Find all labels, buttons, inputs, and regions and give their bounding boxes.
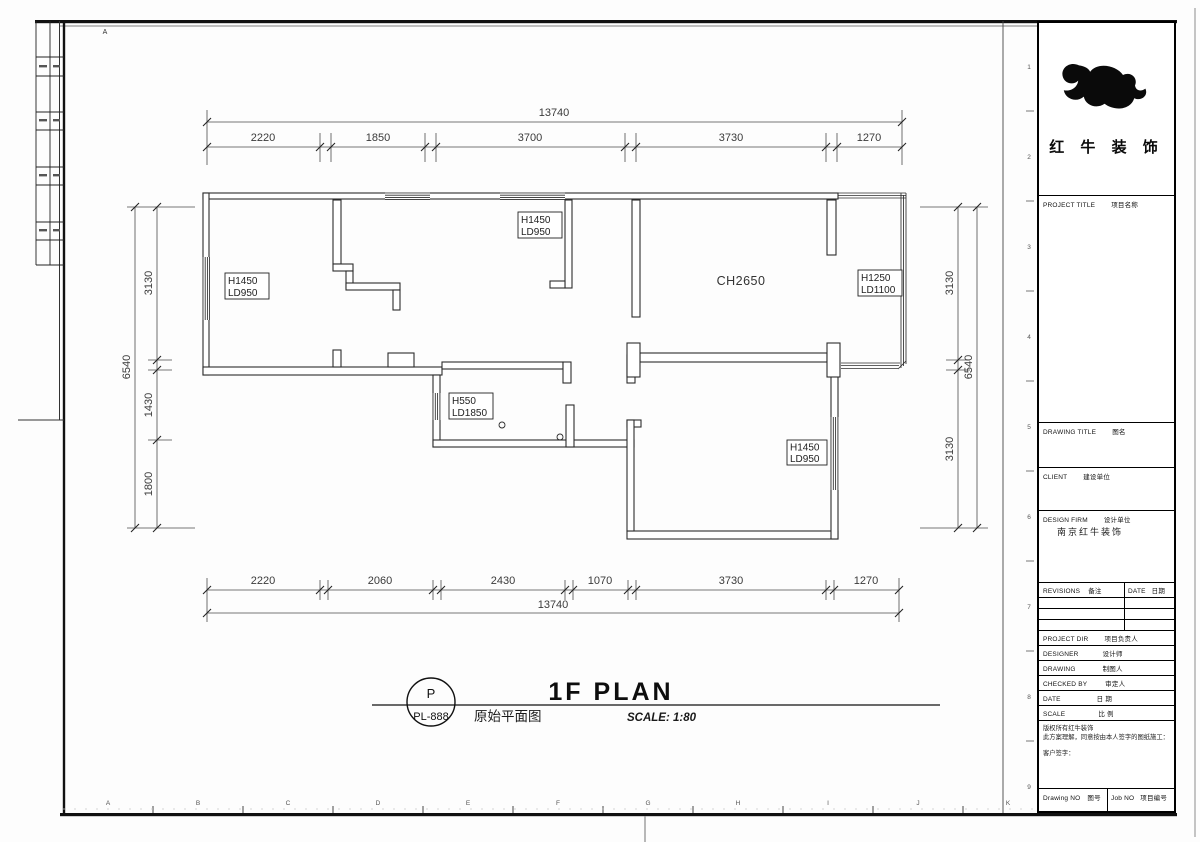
- field-label-en: SCALE: [1043, 711, 1065, 718]
- field-design-firm: DESIGN FIRM 设计单位: [1043, 514, 1131, 524]
- window-kitchen: [432, 393, 440, 420]
- field-label-cn: 图名: [1112, 429, 1125, 436]
- company-name: 红 牛 装 饰: [1039, 136, 1174, 157]
- field-label-cn: 设计单位: [1104, 517, 1131, 524]
- drawing-canvas: A B C D E F G H I J K 1 2 3 4 5 6 7 8 9 …: [0, 0, 1200, 842]
- sheet-frame: [18, 8, 1195, 842]
- ruler-number: 3: [1027, 244, 1031, 251]
- wall-tcap-right: [827, 343, 840, 377]
- wall-kitchen-bottom: [433, 440, 634, 447]
- field-label-en: PROJECT DIR: [1043, 636, 1088, 643]
- window-label-top-wall: H1450 LD950: [518, 212, 562, 238]
- window-left-wall: [202, 257, 209, 320]
- dim: 2220: [251, 575, 275, 587]
- dim: 3130: [944, 437, 956, 461]
- field-checked-by: CHECKED BY 审定人: [1043, 678, 1125, 688]
- ruler-number: 5: [1027, 424, 1031, 431]
- ruler-letter: C: [286, 800, 291, 807]
- ruler-number: 8: [1027, 694, 1031, 701]
- field-job-no: Job NO 项目编号: [1111, 792, 1167, 802]
- field-label-en: DRAWING: [1043, 666, 1076, 673]
- window-bottom-room: [830, 417, 838, 490]
- bull-logo-icon: [1055, 59, 1159, 127]
- wall-step: [393, 290, 400, 310]
- plan-labels: CH2650 H1450 LD950 H1450 LD950 H1250 LD1…: [225, 212, 902, 465]
- dim: 1800: [143, 472, 155, 496]
- field-label-en: DESIGN FIRM: [1043, 517, 1088, 524]
- ruler-letter: H: [736, 800, 741, 807]
- dim: 3130: [944, 271, 956, 295]
- floor-plan-walls: [203, 193, 840, 539]
- field-date-col: DATE 日期: [1128, 585, 1165, 595]
- field-label-cn: 项目名称: [1111, 202, 1138, 209]
- field-project-title: PROJECT TITLE 项目名称: [1043, 199, 1138, 209]
- field-label-cn: 比 例: [1098, 711, 1113, 718]
- dim: 1270: [854, 575, 878, 587]
- dim: 2430: [491, 575, 515, 587]
- wall-pier: [388, 353, 414, 367]
- wall-partition-2: [565, 200, 572, 288]
- dim: 2220: [251, 132, 275, 144]
- window-label-bay: H1250 LD1100: [858, 270, 902, 296]
- field-label-cn: 制图人: [1103, 666, 1123, 673]
- field-label-en: REVISIONS: [1043, 588, 1080, 595]
- fold-strip-cell-marks: [39, 65, 60, 231]
- dim: 3700: [518, 132, 542, 144]
- ruler-letter: G: [645, 800, 650, 807]
- ruler-letter: K: [1006, 800, 1011, 807]
- wall-kitchen-divider: [566, 405, 574, 447]
- window-label-line: H1250: [861, 273, 891, 284]
- field-label-en: CHECKED BY: [1043, 681, 1087, 688]
- drawing-scale: SCALE: 1:80: [627, 712, 697, 724]
- field-label-cn: 备注: [1088, 588, 1101, 595]
- wall-step: [346, 283, 400, 290]
- field-label-en: DESIGNER: [1043, 651, 1079, 658]
- field-label-cn: 项目编号: [1140, 795, 1167, 802]
- ruler-number: 2: [1027, 154, 1031, 161]
- bubble-letter: P: [427, 686, 436, 701]
- window-label-line: LD950: [521, 227, 551, 238]
- dim: 1270: [857, 132, 881, 144]
- wall-partition-hall: [632, 200, 640, 317]
- dim-bottom-total: 13740: [538, 599, 569, 611]
- dim-right-total: 6540: [963, 355, 975, 379]
- field-label-cn: 项目负责人: [1104, 636, 1138, 643]
- wall-step: [333, 264, 353, 271]
- note-line: 此方案理解，同意按由本人签字的图纸施工：: [1043, 733, 1171, 742]
- ruler-number: 7: [1027, 604, 1031, 611]
- window-label-bottom-room: H1450 LD950: [787, 440, 827, 465]
- top-border: [35, 20, 1177, 23]
- field-drawing-title: DRAWING TITLE 图名: [1043, 426, 1126, 436]
- ruler-letter: D: [376, 800, 381, 807]
- drain-circle: [499, 422, 505, 428]
- field-label-cn: 建设单位: [1083, 474, 1110, 481]
- bottom-border: [60, 813, 1177, 816]
- field-label-en: CLIENT: [1043, 474, 1067, 481]
- field-revisions: REVISIONS 备注: [1043, 585, 1102, 595]
- field-client: CLIENT 建设单位: [1043, 471, 1110, 481]
- design-firm-value: 南京红牛装饰: [1057, 525, 1123, 538]
- title-block: 红 牛 装 饰 PROJECT TITLE 项目名称 DRAWING TITLE…: [1037, 21, 1176, 813]
- wall-stub: [563, 362, 571, 383]
- field-label-cn: 设计师: [1103, 651, 1123, 658]
- dim: 1850: [366, 132, 390, 144]
- field-project-dir: PROJECT DIR 项目负责人: [1043, 633, 1138, 643]
- wall-kitchen-top: [442, 362, 563, 369]
- field-drawing-no: Drawing NO 图号: [1043, 792, 1101, 802]
- window-label-line: H550: [452, 396, 476, 407]
- wall-partition-1: [333, 200, 341, 264]
- right-ruler: 1 2 3 4 5 6 7 8 9: [1026, 64, 1034, 791]
- window-label-line: LD950: [228, 288, 258, 299]
- drawing-title-cn: 原始平面图: [474, 709, 542, 724]
- window-label-line: LD950: [790, 454, 820, 465]
- wall-stub: [333, 350, 341, 367]
- drain-circle: [557, 434, 563, 440]
- ruler-letter: B: [196, 800, 200, 807]
- ruler-letter: A: [106, 800, 111, 807]
- copyright-notes: 版权所有红牛装饰 此方案理解，同意按由本人签字的图纸施工： 客户签字：: [1043, 724, 1171, 758]
- note-line: 客户签字：: [1043, 749, 1171, 758]
- dim-top-total: 13740: [539, 107, 570, 119]
- drawing-title-bar: P PL-888 1F PLAN 原始平面图 SCALE: 1:80: [372, 678, 940, 726]
- ruler-letter: J: [916, 800, 919, 807]
- ruler-number: 1: [1027, 64, 1031, 71]
- ruler-number: 4: [1027, 334, 1031, 341]
- field-label-cn: 日 期: [1097, 696, 1112, 703]
- dim: 2060: [368, 575, 392, 587]
- dim-left-total: 6540: [121, 355, 133, 379]
- bottom-ruler: A B C D E F G H I J K: [63, 800, 1035, 813]
- drawing-sheet: A B C D E F G H I J K 1 2 3 4 5 6 7 8 9 …: [0, 0, 1200, 842]
- wall-tcap-left: [627, 343, 640, 377]
- dim: 3730: [719, 575, 743, 587]
- ruler-number: 6: [1027, 514, 1031, 521]
- field-label-en: DATE: [1043, 696, 1061, 703]
- window-label-line: H1450: [521, 215, 551, 226]
- ruler-letter: E: [466, 800, 471, 807]
- field-designer: DESIGNER 设计师: [1043, 648, 1123, 658]
- wall-partition-horizontal: [640, 353, 827, 362]
- note-line: 版权所有红牛装饰: [1043, 724, 1171, 733]
- dim: 1430: [143, 393, 155, 417]
- field-label-en: Drawing NO: [1043, 795, 1080, 802]
- wall-bottomroom-left: [627, 420, 634, 531]
- wall-bay-stub: [827, 200, 836, 255]
- field-scale-row: SCALE 比 例: [1043, 708, 1114, 718]
- window-label-left-wall: H1450 LD950: [225, 273, 269, 299]
- window-label-line: H1450: [228, 276, 258, 287]
- room-height-label: CH2650: [717, 274, 766, 288]
- field-label-en: DATE: [1128, 588, 1146, 595]
- window-label-line: LD1100: [861, 285, 896, 296]
- ruler-letter: F: [556, 800, 560, 807]
- field-label-en: Job NO: [1111, 795, 1134, 802]
- top-grid-marker: A: [103, 29, 108, 36]
- dim: 1070: [588, 575, 612, 587]
- window-top-2: [500, 192, 565, 199]
- field-label-cn: 日期: [1152, 588, 1165, 595]
- ruler-letter: I: [827, 800, 829, 807]
- window-top-1: [385, 192, 430, 199]
- drawing-title-en: 1F PLAN: [548, 678, 673, 706]
- field-label-en: PROJECT TITLE: [1043, 202, 1095, 209]
- field-drawing: DRAWING 制图人: [1043, 663, 1123, 673]
- window-label-line: LD1850: [452, 408, 487, 419]
- window-label-line: H1450: [790, 443, 820, 454]
- window-label-kitchen: H550 LD1850: [449, 393, 493, 419]
- field-label-en: DRAWING TITLE: [1043, 429, 1096, 436]
- wall-bottomroom-bottom: [627, 531, 838, 539]
- field-label-cn: 审定人: [1105, 681, 1125, 688]
- bubble-code: PL-888: [413, 711, 448, 723]
- field-date-row: DATE 日 期: [1043, 693, 1112, 703]
- wall-foot: [550, 281, 565, 288]
- field-label-cn: 图号: [1087, 795, 1100, 802]
- ruler-number: 9: [1027, 784, 1031, 791]
- wall-bottom-left-section: [203, 367, 442, 375]
- dim: 3730: [719, 132, 743, 144]
- dimension-texts: 13740 2220 1850 3700 3730 1270 2220 2060…: [121, 107, 975, 611]
- dim: 3130: [143, 271, 155, 295]
- plan-details: [499, 422, 563, 440]
